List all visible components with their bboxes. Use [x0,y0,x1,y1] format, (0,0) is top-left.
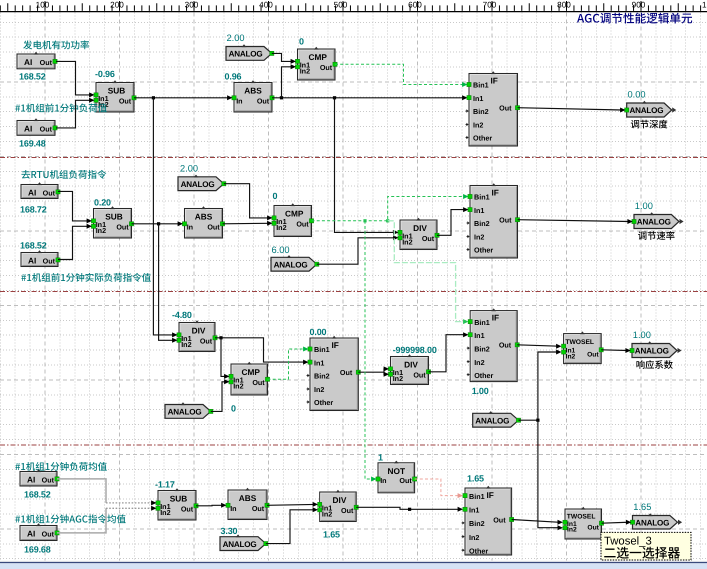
svg-text:Out: Out [340,368,353,377]
svg-text:Out: Out [422,234,435,243]
svg-text:ANALOG: ANALOG [168,408,202,417]
svg-text:ANALOG: ANALOG [635,347,669,356]
svg-text:AI: AI [28,188,36,198]
svg-text:169.48: 169.48 [19,139,46,149]
svg-text:0.00: 0.00 [628,89,646,99]
svg-text:In1: In1 [314,358,324,367]
svg-text:Out: Out [296,220,309,229]
svg-text:TWOSEL: TWOSEL [567,514,596,521]
svg-text:CMP: CMP [309,52,328,62]
svg-text:6.00: 6.00 [272,245,290,255]
svg-text:AI: AI [27,529,35,539]
svg-text:In2: In2 [314,385,324,394]
svg-text:ANALOG: ANALOG [181,180,215,189]
svg-text:0.96: 0.96 [225,72,242,82]
svg-text:In1: In1 [474,331,484,340]
svg-text:Out: Out [252,378,265,387]
svg-text:Out: Out [43,189,56,198]
svg-text:In2: In2 [233,381,243,390]
svg-text:2.00: 2.00 [227,33,245,43]
svg-text:Bin1: Bin1 [474,193,490,202]
svg-text:Out: Out [499,104,512,113]
svg-text:AI: AI [27,475,35,485]
svg-text:Out: Out [499,341,512,350]
svg-text:Bin2: Bin2 [474,219,490,228]
svg-text:1.65: 1.65 [323,530,340,540]
svg-text:In2: In2 [474,233,484,242]
svg-text:ABS: ABS [244,86,262,96]
svg-text:In1: In1 [473,94,483,103]
svg-text:ABS: ABS [239,493,257,503]
svg-text:600: 600 [408,0,422,9]
svg-text:Out: Out [42,530,55,539]
svg-text:IF: IF [491,76,498,86]
svg-text:IF: IF [492,188,499,198]
svg-text:-999998.00: -999998.00 [393,345,437,355]
svg-text:AI: AI [24,57,32,67]
svg-text:In: In [230,504,236,513]
svg-text:-1.17: -1.17 [155,480,175,490]
svg-text:2.00: 2.00 [180,164,198,174]
svg-text:ANALOG: ANALOG [637,218,671,227]
svg-text:Out: Out [200,337,213,346]
svg-text:-0.96: -0.96 [95,69,115,79]
svg-text:In2: In2 [566,354,576,361]
svg-text:In2: In2 [402,237,412,246]
svg-text:Out: Out [181,505,194,514]
svg-text:1.65: 1.65 [633,502,651,512]
svg-text:1: 1 [702,0,707,9]
svg-text:In2: In2 [300,66,310,75]
svg-text:AI: AI [24,124,32,134]
svg-text:Other: Other [469,546,488,555]
svg-text:Bin2: Bin2 [469,519,485,528]
svg-text:168.52: 168.52 [20,241,47,251]
svg-text:IF: IF [332,340,339,350]
svg-text:Out: Out [413,371,426,380]
svg-text:In2: In2 [469,533,479,542]
svg-text:AI: AI [28,256,36,266]
svg-text:Out: Out [207,223,220,232]
svg-text:Bin1: Bin1 [473,81,489,90]
svg-text:Bin1: Bin1 [469,492,485,501]
svg-text:In2: In2 [473,121,483,130]
svg-text:1.00: 1.00 [633,330,651,340]
svg-text:1.00: 1.00 [635,201,653,211]
svg-text:In2: In2 [474,358,484,367]
svg-text:800: 800 [557,0,571,9]
svg-text:0.20: 0.20 [94,198,111,208]
svg-text:NOT: NOT [388,466,406,476]
svg-text:700: 700 [483,0,497,9]
svg-text:Twosel_3: Twosel_3 [604,536,652,548]
svg-text:In: In [187,223,193,232]
svg-text:In: In [380,476,386,485]
svg-text:ANALOG: ANALOG [229,50,263,59]
svg-text:900: 900 [632,0,646,9]
svg-text:In2: In2 [567,527,577,534]
svg-text:1.65: 1.65 [467,474,484,484]
svg-text:Out: Out [499,216,512,225]
svg-text:Bin2: Bin2 [473,107,489,116]
svg-text:Out: Out [341,506,354,515]
svg-text:169.68: 169.68 [24,545,51,555]
svg-text:168.72: 168.72 [20,205,47,215]
svg-text:0: 0 [273,191,278,201]
svg-text:Out: Out [252,504,265,513]
svg-text:Out: Out [43,257,56,266]
svg-text:1: 1 [378,453,383,463]
svg-text:IF: IF [492,313,499,323]
svg-text:IF: IF [487,490,494,500]
svg-text:SUB: SUB [170,494,188,504]
svg-text:200: 200 [110,0,124,9]
svg-text:ANALOG: ANALOG [630,106,664,115]
svg-text:-4.80: -4.80 [172,310,192,320]
svg-text:Out: Out [493,515,506,524]
svg-text:In2: In2 [393,374,403,383]
svg-text:Out: Out [257,97,270,106]
svg-text:TWOSEL: TWOSEL [565,339,594,346]
svg-text:ANALOG: ANALOG [274,260,308,269]
svg-text:3.30: 3.30 [221,526,238,536]
svg-text:Out: Out [320,63,333,72]
svg-text:In2: In2 [322,509,332,518]
svg-text:100: 100 [36,0,50,9]
svg-text:ANALOG: ANALOG [223,540,257,549]
svg-text:1.00: 1.00 [472,386,489,396]
svg-text:Out: Out [119,97,132,106]
svg-text:Bin2: Bin2 [474,344,490,353]
svg-text:SUB: SUB [108,86,126,96]
svg-text:In2: In2 [181,340,191,349]
svg-text:Out: Out [399,476,412,485]
svg-text:SUB: SUB [105,212,123,222]
svg-text:In2: In2 [160,508,170,517]
svg-text:ANALOG: ANALOG [635,518,669,527]
svg-text:300: 300 [185,0,199,9]
svg-text:In: In [236,97,242,106]
svg-text:Out: Out [40,125,53,134]
svg-text:Out: Out [587,525,599,532]
svg-text:500: 500 [334,0,348,9]
svg-text:Other: Other [474,246,493,255]
svg-text:0.00: 0.00 [310,327,327,337]
svg-text:DIV: DIV [333,495,347,505]
svg-text:Other: Other [473,134,492,143]
svg-text:CMP: CMP [242,367,261,377]
svg-text:DIV: DIV [192,326,206,336]
svg-text:0: 0 [231,404,236,414]
svg-text:In2: In2 [96,226,106,235]
svg-text:In2: In2 [276,223,286,232]
svg-text:Out: Out [42,476,55,485]
svg-text:ANALOG: ANALOG [475,416,509,425]
svg-text:DIV: DIV [404,360,418,370]
svg-text:Out: Out [40,58,53,67]
svg-text:Other: Other [314,398,333,407]
svg-text:400: 400 [259,0,273,9]
svg-text:Bin1: Bin1 [314,345,330,354]
svg-text:168.52: 168.52 [19,72,46,82]
svg-text:In1: In1 [469,506,479,515]
svg-text:Other: Other [474,371,493,380]
svg-text:0: 0 [299,37,304,47]
svg-text:CMP: CMP [285,209,304,219]
svg-text:Bin2: Bin2 [314,372,330,381]
svg-text:Bin1: Bin1 [474,318,490,327]
svg-text:DIV: DIV [413,223,427,233]
svg-text:Out: Out [587,352,599,359]
svg-text:ABS: ABS [195,212,213,222]
svg-text:Out: Out [116,223,129,232]
svg-text:168.52: 168.52 [24,490,51,500]
svg-text:In1: In1 [474,206,484,215]
